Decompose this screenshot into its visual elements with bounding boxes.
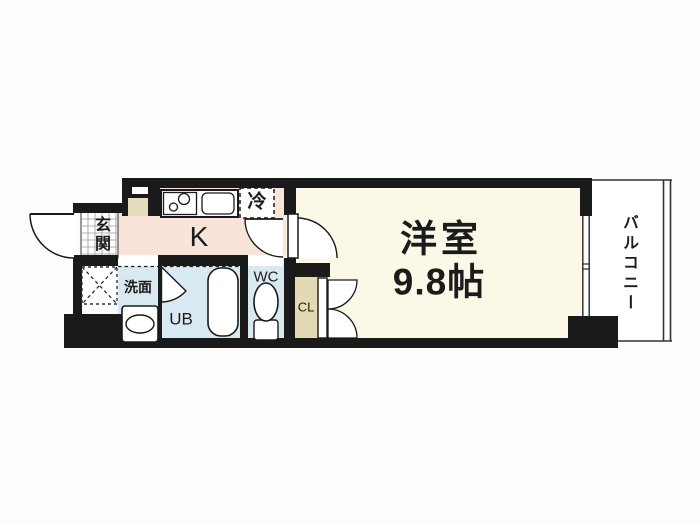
wall-room-upper: [284, 178, 296, 215]
floorplan-canvas: 玄関 K 冷 洗面 UB WC CL 洋室 9.8帖 バルコニー: [0, 0, 700, 525]
wall-right-top: [580, 178, 592, 216]
washroom-label: 洗面: [124, 280, 152, 294]
bathtub-icon: [208, 268, 238, 336]
kitchen-counter: [161, 190, 238, 217]
kitchen-label: K: [190, 223, 209, 251]
balcony-label: バルコニー: [620, 214, 636, 314]
wall-bath-wc-divider: [240, 255, 248, 340]
floorplan-drawing: [0, 0, 700, 525]
unit-bath-label: UB: [169, 311, 193, 328]
pipe-space-box: [82, 267, 117, 304]
main-room-label: 洋室: [400, 221, 482, 258]
entrance-door-arc: [30, 214, 74, 258]
stove-burner-icon: [179, 194, 190, 205]
washroom-entry: [118, 255, 158, 266]
room-door-leaf: [288, 214, 298, 258]
wall-notch: [132, 187, 148, 194]
wall-above-bath: [158, 255, 245, 266]
closet-door-panel: [318, 278, 327, 338]
wall-top: [122, 178, 592, 188]
shoe-cabinet: [128, 198, 148, 216]
room-size-label: 9.8帖: [393, 264, 485, 301]
stove-burner-icon: [170, 203, 178, 211]
closet-label: CL: [298, 301, 315, 314]
wall-wc-closet-divider: [284, 263, 295, 340]
refrigerator-label: 冷: [247, 193, 266, 212]
sink-icon: [202, 193, 234, 214]
wall-bottom-right-pillar: [568, 316, 618, 348]
genkan-label: 玄関: [92, 216, 108, 254]
wc-label: WC: [254, 270, 279, 285]
washbasin-icon: [122, 306, 158, 342]
wall-genkan-top: [73, 203, 122, 213]
toilet-icon: [254, 283, 278, 340]
kitchen-floor-sliver: [118, 212, 124, 255]
balcony-window: [582, 216, 590, 316]
